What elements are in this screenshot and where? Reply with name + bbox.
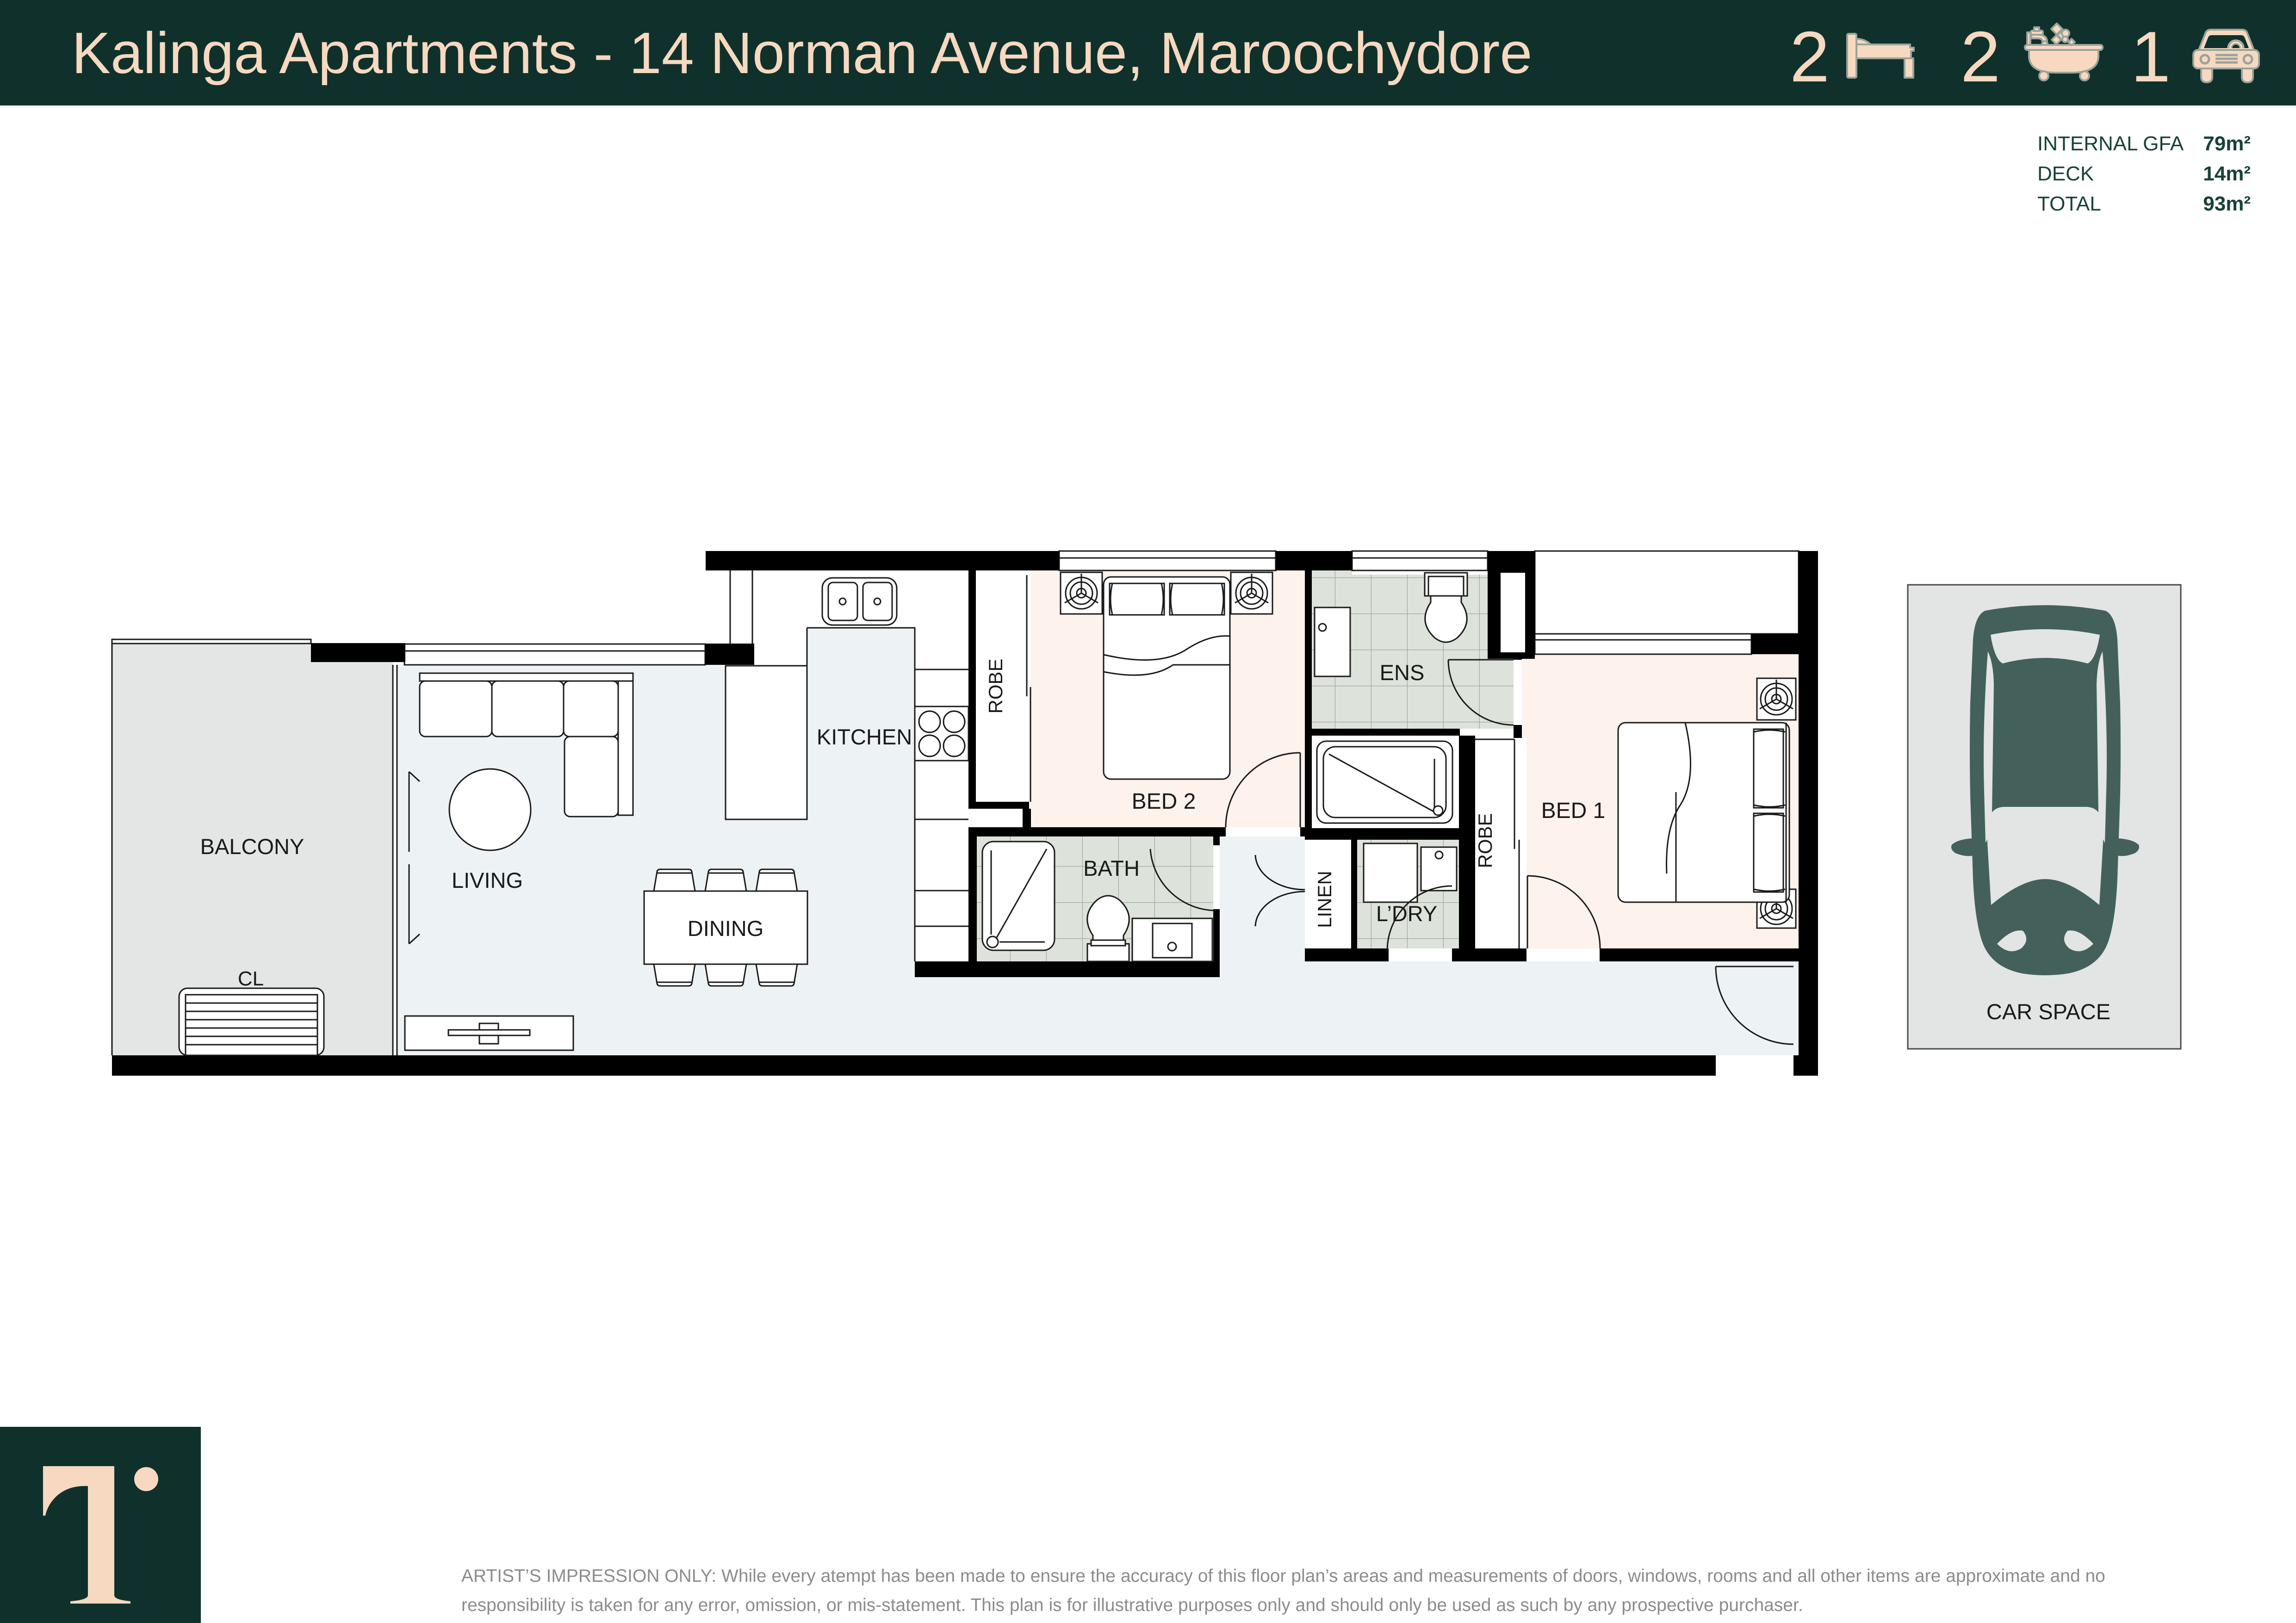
svg-text:BED 2: BED 2 <box>1132 789 1196 814</box>
svg-text:TOTAL: TOTAL <box>2037 192 2101 215</box>
svg-text:Kalinga Apartments - 14 Norman: Kalinga Apartments - 14 Norman Avenue, M… <box>72 20 1532 86</box>
svg-text:CAR SPACE: CAR SPACE <box>1986 999 2110 1024</box>
svg-text:93m²: 93m² <box>2203 192 2251 215</box>
svg-text:CL: CL <box>238 967 264 990</box>
svg-text:KITCHEN: KITCHEN <box>817 725 912 749</box>
svg-text:BED 1: BED 1 <box>1541 799 1606 823</box>
svg-text:ROBE: ROBE <box>985 658 1006 713</box>
svg-text:DINING: DINING <box>688 916 764 941</box>
svg-text:LIVING: LIVING <box>452 868 523 892</box>
svg-text:ROBE: ROBE <box>1474 813 1496 868</box>
svg-text:2: 2 <box>1961 17 2000 97</box>
svg-text:2: 2 <box>1790 17 1830 97</box>
svg-text:responsibility is taken for an: responsibility is taken for any error, o… <box>461 1595 1803 1615</box>
svg-text:BALCONY: BALCONY <box>200 834 304 859</box>
svg-text:BATH: BATH <box>1083 856 1140 880</box>
svg-text:79m²: 79m² <box>2203 132 2251 155</box>
svg-text:14m²: 14m² <box>2203 162 2251 185</box>
svg-text:INTERNAL GFA: INTERNAL GFA <box>2037 132 2184 155</box>
svg-text:ARTIST’S IMPRESSION ONLY: Whil: ARTIST’S IMPRESSION ONLY: While every at… <box>461 1566 2105 1586</box>
svg-text:LINEN: LINEN <box>1314 871 1335 928</box>
svg-text:1: 1 <box>2131 17 2171 97</box>
svg-text:L’DRY: L’DRY <box>1376 901 1437 926</box>
svg-text:DECK: DECK <box>2037 162 2094 185</box>
svg-text:ENS: ENS <box>1380 660 1425 685</box>
